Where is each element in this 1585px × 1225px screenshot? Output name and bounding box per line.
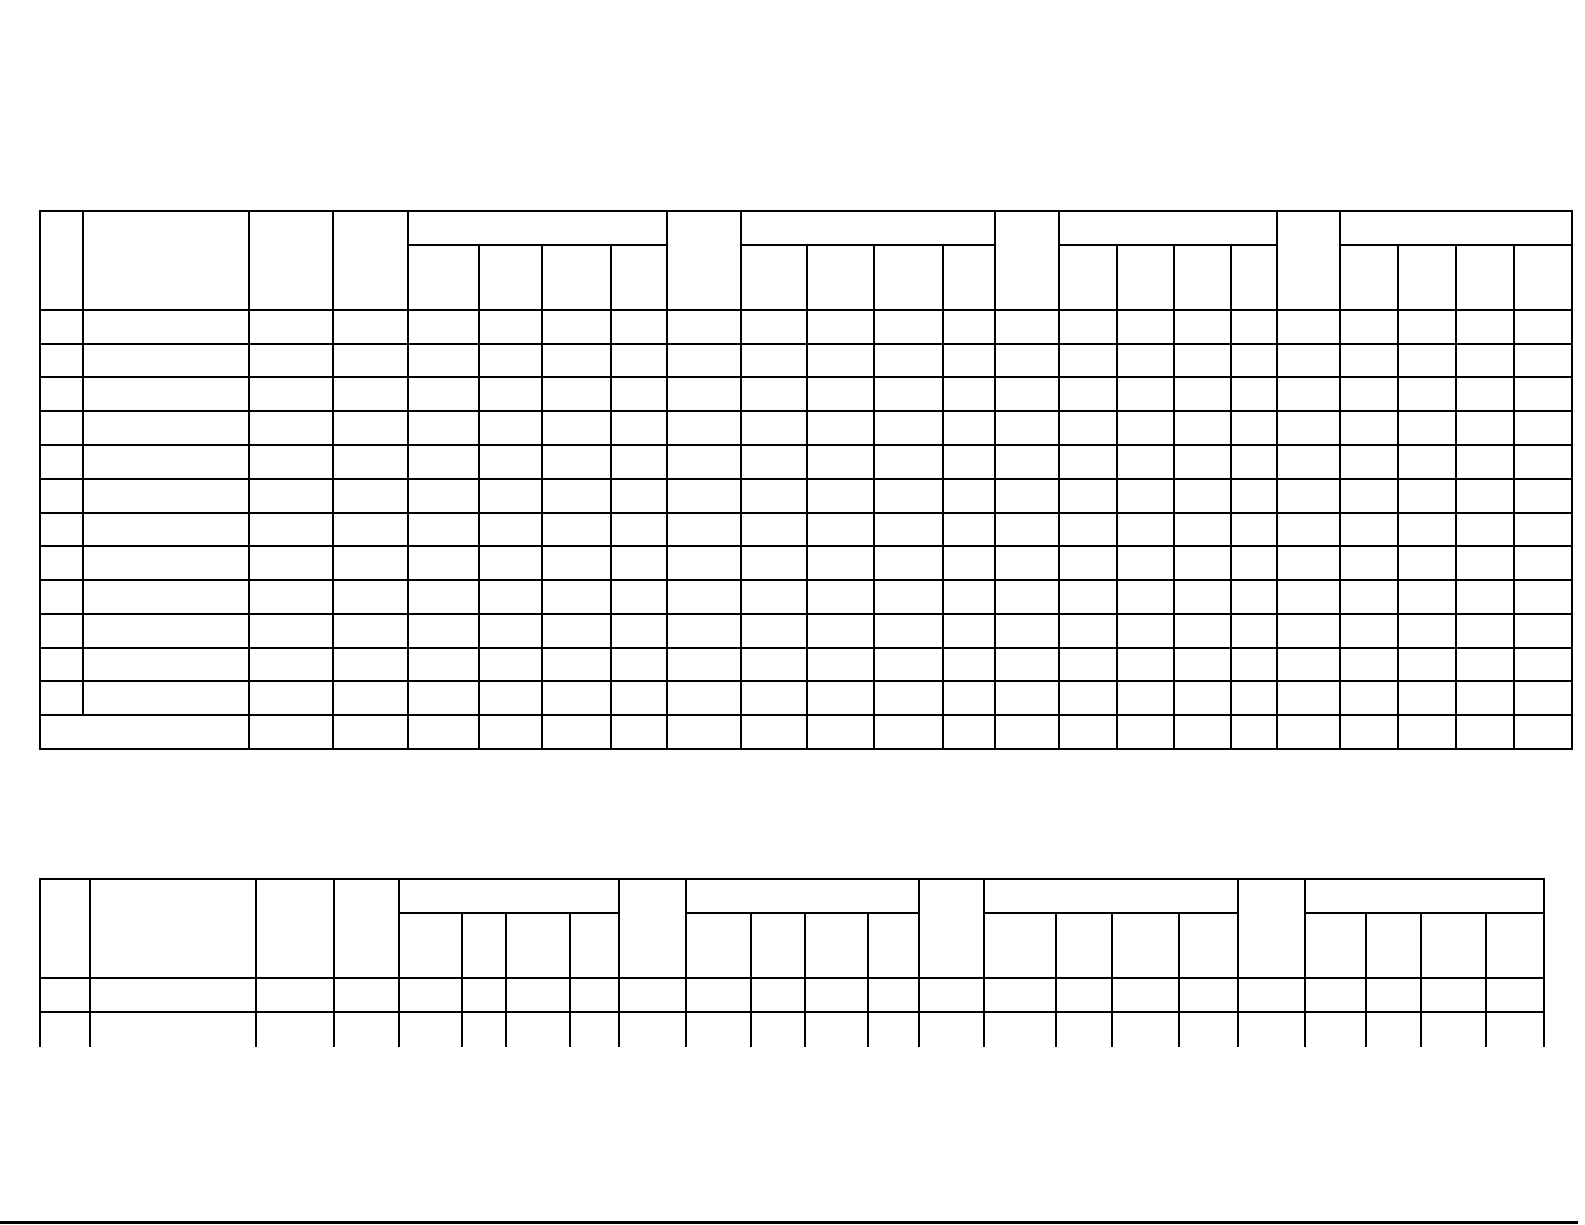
grid-line-vertical [685,878,687,1047]
grid-line-vertical [806,244,808,750]
grid-line-vertical [39,210,41,750]
grid-line-vertical [569,912,571,1047]
grid-line-vertical [873,244,875,750]
grid-line-vertical [332,210,334,750]
grid-line-horizontal [39,545,1573,547]
document-page [0,0,1585,1225]
grid-line-horizontal [39,647,1573,649]
grid-line-vertical [248,210,250,750]
grid-line-vertical [1485,912,1487,1047]
grid-line-horizontal [39,977,1545,979]
grid-line-vertical [333,878,335,1047]
grid-line-vertical [1058,210,1060,750]
grid-line-horizontal [39,444,1573,446]
grid-line-vertical [398,878,400,1047]
grid-line-vertical [1237,878,1239,1047]
grid-line-vertical [1339,210,1341,750]
grid-line-vertical [1173,244,1175,750]
grid-line-horizontal [39,748,1573,750]
grid-line-vertical [505,912,507,1047]
grid-line-horizontal [39,410,1573,412]
grid-line-vertical [942,244,944,750]
grid-line-vertical [461,912,463,1047]
grid-line-horizontal [39,478,1573,480]
grid-line-horizontal [1339,244,1573,246]
grid-line-vertical [618,878,620,1047]
grid-line-vertical [1420,912,1422,1047]
grid-line-horizontal [39,1011,1545,1013]
grid-line-vertical [610,244,612,750]
grid-line-horizontal [740,244,996,246]
grid-line-vertical [750,912,752,1047]
grid-line-horizontal [39,309,1573,311]
grid-line-vertical [1543,878,1545,1047]
grid-line-horizontal [39,680,1573,682]
grid-line-vertical [541,244,543,750]
grid-line-horizontal [39,714,1573,716]
grid-line-horizontal [39,376,1573,378]
grid-line-vertical [407,210,409,750]
grid-line-vertical [1365,912,1367,1047]
grid-line-vertical [804,912,806,1047]
grid-line-horizontal [983,912,1239,914]
grid-line-vertical [867,912,869,1047]
blank-form-table-top [0,0,1585,1225]
grid-line-vertical [994,210,996,750]
grid-line-vertical [89,878,91,1047]
grid-line-horizontal [39,613,1573,615]
grid-line-vertical [82,210,84,716]
grid-line-vertical [1304,878,1306,1047]
grid-line-vertical [1455,244,1457,750]
grid-line-vertical [1111,912,1113,1047]
grid-line-horizontal [685,912,920,914]
grid-line-vertical [1513,244,1515,750]
grid-line-horizontal [398,912,620,914]
grid-line-horizontal [39,878,1545,880]
grid-line-horizontal [39,343,1573,345]
grid-line-vertical [1571,210,1573,750]
grid-line-vertical [1178,912,1180,1047]
grid-line-vertical [1230,244,1232,750]
grid-line-horizontal [407,244,668,246]
grid-line-horizontal [39,210,1573,212]
grid-line-vertical [1276,210,1278,750]
grid-line-vertical [478,244,480,750]
grid-line-vertical [1116,244,1118,750]
grid-line-vertical [1055,912,1057,1047]
grid-line-horizontal [39,512,1573,514]
grid-line-horizontal [1058,244,1278,246]
grid-line-vertical [255,878,257,1047]
grid-line-vertical [983,878,985,1047]
page-bottom-rule [0,1221,1578,1224]
grid-line-horizontal [1304,912,1545,914]
grid-line-vertical [740,210,742,750]
grid-line-vertical [39,878,41,1047]
grid-line-vertical [918,878,920,1047]
grid-line-horizontal [39,579,1573,581]
grid-line-vertical [1397,244,1399,750]
blank-form-table-bottom-truncated [0,0,1585,1225]
grid-line-vertical [666,210,668,750]
